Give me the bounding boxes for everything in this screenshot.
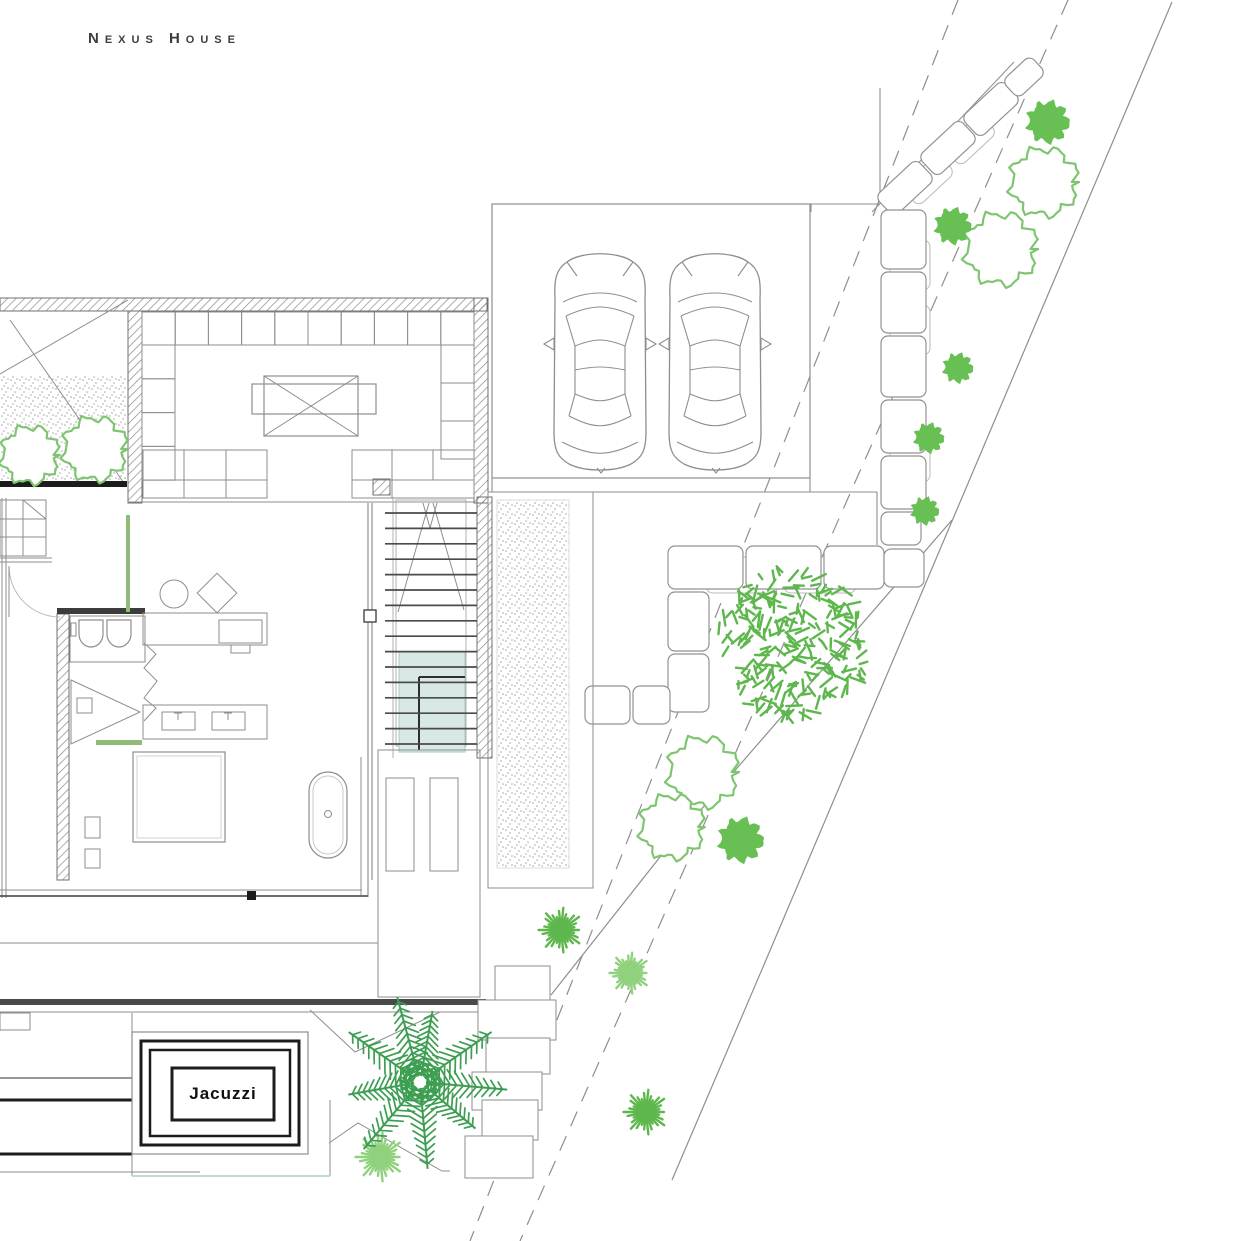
- jacuzzi-label: Jacuzzi: [172, 1068, 274, 1120]
- page-title: Nexus House: [88, 30, 241, 47]
- floor-plan-canvas: Nexus House Jacuzzi: [0, 0, 1241, 1241]
- sun-loungers: [386, 778, 458, 871]
- gravel-path: [488, 492, 593, 888]
- kitchen-island: [252, 376, 376, 436]
- bathtub: [309, 772, 347, 858]
- deck: [378, 750, 480, 997]
- stepping-stones: [465, 966, 556, 1178]
- parking-pad: [492, 204, 877, 492]
- floor-plan-svg: [0, 0, 1241, 1241]
- car-1: [544, 254, 656, 473]
- kitchen-cabinets: [128, 312, 474, 502]
- car-2: [659, 254, 771, 473]
- bed: [85, 752, 225, 868]
